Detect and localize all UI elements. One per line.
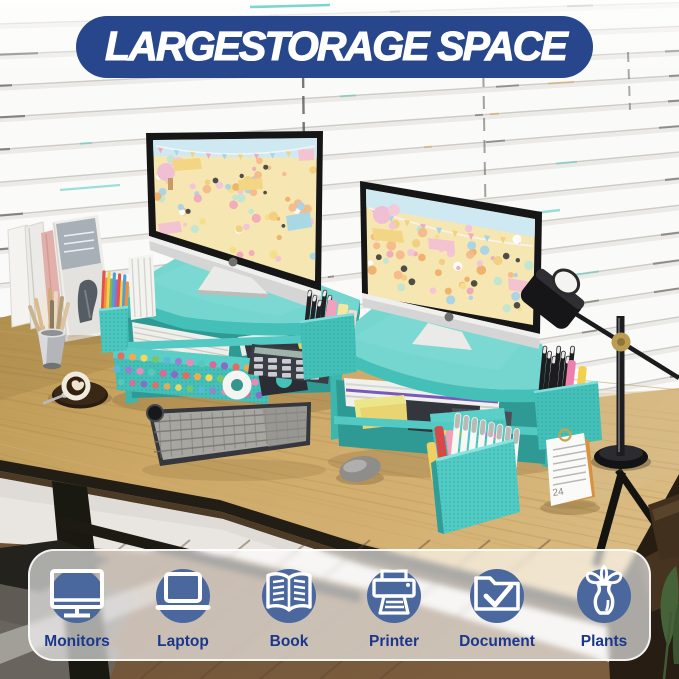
svg-text:24: 24: [552, 486, 565, 499]
